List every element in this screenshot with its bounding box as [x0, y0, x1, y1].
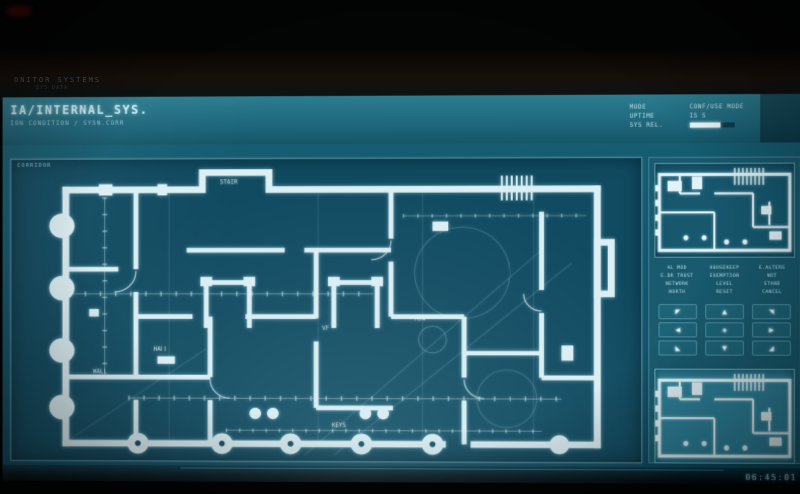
- monitor-screen: IA/INTERNAL_SYS. ION CONDITION / SYSN.CO…: [3, 94, 800, 484]
- table-cell: RESET: [704, 289, 745, 296]
- walls: [66, 172, 611, 445]
- pan-control-pad: ◤ ▲ ◥ ◀ ✚ ▶ ◣ ▼ ◢: [654, 303, 795, 358]
- table-cell: NORTH: [656, 289, 697, 296]
- pan-down-button[interactable]: ▼: [705, 340, 744, 355]
- scene: ONITOR SYSTEMS SYS DATA IA/INTERNAL_SYS.…: [0, 0, 800, 494]
- status-values: CONF/USE MODE IS S: [689, 102, 743, 139]
- svg-text:VF: VF: [322, 326, 330, 332]
- status-labels: MODE UPTIME SYS REL.: [630, 103, 663, 139]
- pan-up-left-button[interactable]: ◤: [658, 304, 697, 319]
- ambient-label-line2: SYS DATA: [36, 84, 101, 92]
- status-value-1: CONF/USE MODE: [689, 102, 743, 111]
- pan-up-button[interactable]: ▲: [705, 304, 744, 319]
- status-progress-fill: [689, 122, 720, 127]
- floorplan-viewport[interactable]: CORRIDOR: [10, 157, 642, 463]
- pan-center-button[interactable]: ✚: [705, 322, 744, 337]
- partitions: [66, 189, 598, 445]
- pan-down-left-button[interactable]: ◣: [658, 340, 697, 355]
- floorplan-svg: STAIR HALL VF WALL KEYS M04: [11, 158, 641, 462]
- system-subtitle: ION CONDITION / SYSN.CORR: [10, 120, 148, 127]
- control-table: AL MOD HOUSEKEEP E.ALTERS E.DR TRUST EXE…: [654, 263, 795, 298]
- pan-left-button[interactable]: ◀: [658, 322, 697, 337]
- table-cell: NOT: [751, 273, 793, 280]
- floorplan-thumbnail-lower[interactable]: [654, 369, 795, 464]
- svg-text:M04: M04: [415, 317, 426, 323]
- right-panel: AL MOD HOUSEKEEP E.ALTERS E.DR TRUST EXE…: [648, 157, 800, 464]
- table-cell: EXEMPTION: [704, 273, 745, 280]
- status-label-mode: MODE: [630, 103, 663, 112]
- status-progress-bar: [689, 122, 734, 127]
- stair-hatch: [502, 176, 532, 201]
- header-shade: [760, 94, 800, 143]
- ambient-red-light: [6, 6, 32, 16]
- svg-text:KEYS: KEYS: [332, 423, 347, 429]
- table-cell: NETWORK: [656, 281, 697, 288]
- system-clock: 06:45:01: [745, 473, 797, 482]
- pan-down-right-button[interactable]: ◢: [752, 341, 791, 356]
- ambient-label-line1: ONITOR SYSTEMS: [14, 76, 101, 84]
- status-value-2: IS S: [689, 111, 743, 120]
- system-title: IA/INTERNAL_SYS.: [10, 103, 148, 117]
- ambient-label: ONITOR SYSTEMS SYS DATA: [14, 76, 101, 92]
- floorplan-thumbnail-upper[interactable]: [654, 163, 795, 258]
- floorplan-thumb-svg-upper: [655, 164, 793, 257]
- table-cell: E.ALTERS: [751, 265, 793, 272]
- table-cell: CANCEL: [751, 289, 793, 296]
- floorplan-thumb-svg-lower: [655, 370, 793, 463]
- reference-lines: [70, 193, 572, 457]
- pan-up-right-button[interactable]: ◥: [752, 304, 791, 319]
- status-label-uptime: UPTIME: [630, 112, 663, 121]
- table-cell: E.DR TRUST: [656, 273, 697, 280]
- background-band: [0, 50, 800, 100]
- pan-right-button[interactable]: ▶: [752, 322, 791, 337]
- table-cell: HOUSEKEEP: [704, 265, 745, 272]
- title-block: IA/INTERNAL_SYS. ION CONDITION / SYSN.CO…: [10, 103, 148, 141]
- screen-body: CORRIDOR: [3, 148, 800, 468]
- table-cell: STAND: [751, 281, 793, 288]
- table-cell: AL MOD: [656, 265, 697, 272]
- fixtures: [49, 183, 573, 455]
- svg-text:STAIR: STAIR: [220, 180, 238, 186]
- svg-text:HALL: HALL: [153, 347, 168, 353]
- status-label-sysrel: SYS REL.: [630, 121, 663, 130]
- header-bar: IA/INTERNAL_SYS. ION CONDITION / SYSN.CO…: [3, 94, 800, 145]
- svg-text:WALL: WALL: [93, 369, 108, 375]
- status-block: MODE UPTIME SYS REL. CONF/USE MODE IS S: [630, 100, 744, 139]
- table-cell: LEVEL: [704, 281, 745, 288]
